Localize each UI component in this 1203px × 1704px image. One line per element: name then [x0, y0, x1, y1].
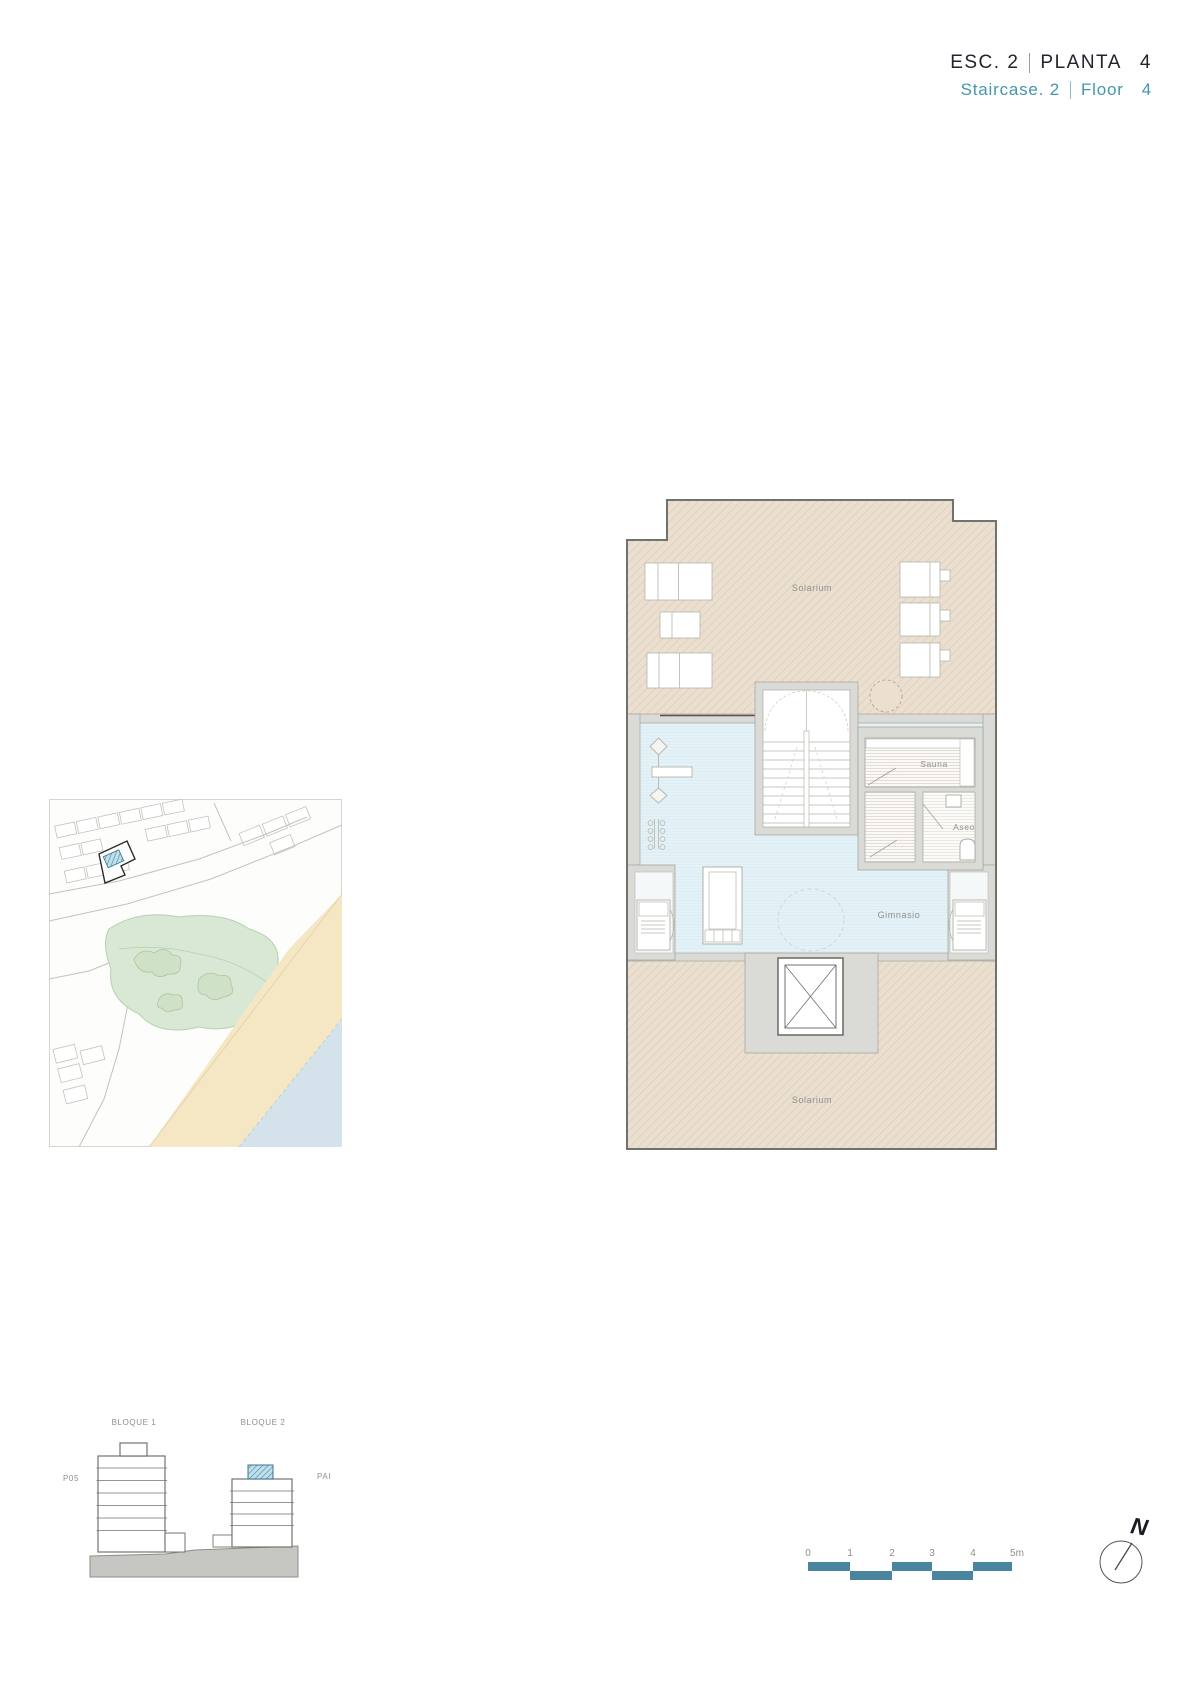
floor-en-label: Floor [1081, 80, 1124, 100]
title-en: Staircase. 2 Floor 4 [950, 80, 1152, 100]
staircase-es-label: ESC. 2 [950, 52, 1019, 74]
treadmill-icon [703, 867, 742, 944]
scale-tick-2: 2 [889, 1548, 895, 1559]
scale-tick-5: 5m [1010, 1548, 1024, 1559]
sauna-label: Sauna [920, 759, 948, 769]
floor-es-number: 4 [1140, 52, 1152, 74]
scale-tick-0: 0 [805, 1548, 811, 1559]
sun-lounger-icon [660, 612, 700, 638]
left-equipment-niche [627, 865, 675, 960]
block2-elevation [230, 1465, 294, 1547]
title-block: ESC. 2 PLANTA 4 Staircase. 2 Floor 4 [950, 52, 1152, 100]
solarium-top-label: Solarium [792, 583, 832, 593]
sun-lounger-icon [647, 653, 712, 688]
exercise-machine-icon [637, 900, 674, 950]
elevation-diagram: BLOQUE 1 BLOQUE 2 P05 PAI [60, 1413, 335, 1613]
staircase-en-label: Staircase. 2 [961, 80, 1060, 100]
scale-bar-segments [808, 1562, 1012, 1580]
sauna-block [858, 727, 983, 870]
staircase [755, 682, 858, 835]
toilet-icon [960, 839, 975, 860]
site-map [49, 799, 342, 1147]
vestibule [865, 792, 915, 862]
sun-lounger-icon [645, 563, 712, 600]
left-level-label: P05 [63, 1474, 79, 1483]
scale-tick-3: 3 [929, 1548, 935, 1559]
right-level-label: PAI [317, 1472, 331, 1481]
solarium-bottom-label: Solarium [792, 1095, 832, 1105]
washbasin-icon [946, 795, 961, 807]
aseo-label: Aseo [953, 822, 975, 832]
scale-bar: 0 1 2 3 4 5m [795, 1540, 1035, 1585]
plan-sheet: ESC. 2 PLANTA 4 Staircase. 2 Floor 4 [0, 0, 1203, 1704]
exercise-machine-icon [949, 900, 986, 950]
floor-plan: Solarium Sauna Aseo Gimnasio Solarium [625, 489, 998, 1151]
scale-tick-4: 4 [970, 1548, 976, 1559]
title-divider [1029, 53, 1030, 73]
sauna-bench [960, 739, 974, 786]
title-es: ESC. 2 PLANTA 4 [950, 52, 1152, 74]
gym-label: Gimnasio [878, 910, 921, 920]
title-divider-en [1070, 81, 1071, 99]
jacuzzi-icon [870, 680, 902, 712]
elevator-icon [745, 953, 878, 1053]
block2-label: BLOQUE 2 [241, 1418, 286, 1427]
block1-elevation [97, 1443, 233, 1552]
north-label: N [1129, 1512, 1150, 1541]
block1-label: BLOQUE 1 [112, 1418, 157, 1427]
right-equipment-niche [948, 865, 996, 960]
floor-es-label: PLANTA [1040, 52, 1122, 74]
north-arrow-icon: N [1095, 1512, 1159, 1588]
highlighted-floor [248, 1465, 273, 1479]
floor-en-number: 4 [1142, 80, 1152, 100]
scale-tick-1: 1 [847, 1548, 853, 1559]
